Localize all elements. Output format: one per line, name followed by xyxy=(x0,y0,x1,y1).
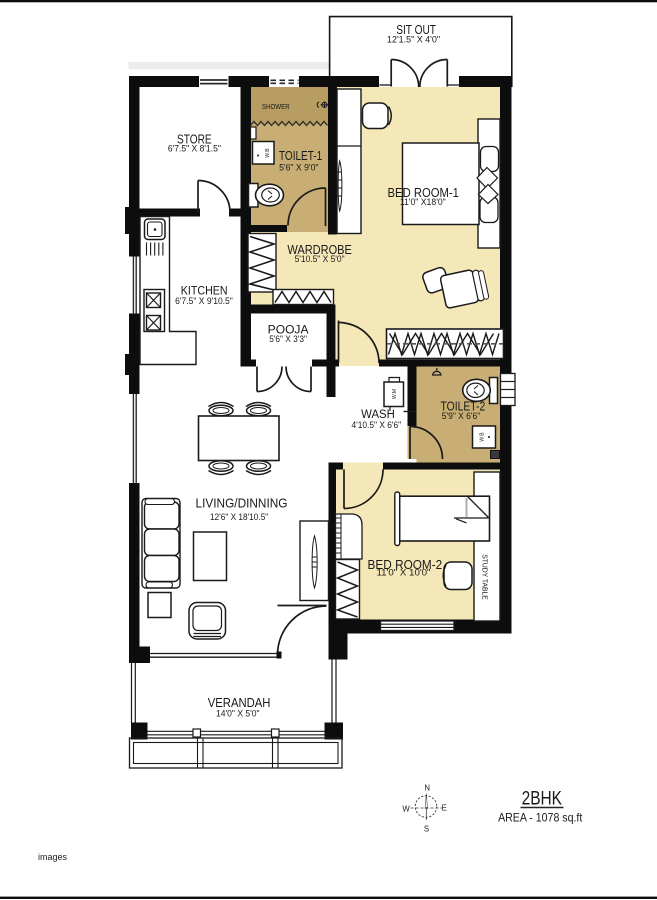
svg-text:12'6" X 18'10.5": 12'6" X 18'10.5" xyxy=(210,512,268,522)
svg-text:W.M: W.M xyxy=(392,389,398,399)
svg-text:W: W xyxy=(402,804,410,813)
svg-text:W.B: W.B xyxy=(480,432,486,442)
svg-text:2BHK: 2BHK xyxy=(522,789,563,810)
svg-text:5'9" X 6'6": 5'9" X 6'6" xyxy=(442,411,480,421)
svg-text:E: E xyxy=(442,803,447,812)
svg-text:TOILET-1: TOILET-1 xyxy=(279,149,322,163)
svg-text:11'0" X 10'0": 11'0" X 10'0" xyxy=(377,568,431,578)
svg-text:14'0" X 5'0": 14'0" X 5'0" xyxy=(216,708,260,718)
svg-text:SHOWER: SHOWER xyxy=(262,102,290,111)
svg-text:5'6" X 3'3": 5'6" X 3'3" xyxy=(269,334,307,344)
svg-text:5'6" X 9'0": 5'6" X 9'0" xyxy=(279,163,318,173)
svg-text:W.B: W.B xyxy=(265,148,271,158)
svg-text:N: N xyxy=(424,784,430,793)
svg-text:S: S xyxy=(424,825,429,834)
svg-text:12'1.5" X 4'0": 12'1.5" X 4'0" xyxy=(387,35,440,45)
svg-text:STUDY TABLE: STUDY TABLE xyxy=(480,554,487,600)
svg-text:5'10.5" X 5'0": 5'10.5" X 5'0" xyxy=(295,254,345,264)
svg-text:AREA - 1078 sq.ft: AREA - 1078 sq.ft xyxy=(498,812,583,825)
svg-text:4'10.5" X 6'6": 4'10.5" X 6'6" xyxy=(351,420,401,430)
svg-text:11'0" X18'0": 11'0" X18'0" xyxy=(400,197,446,207)
svg-text:6'7.5" X 9'10.5": 6'7.5" X 9'10.5" xyxy=(175,296,233,306)
svg-text:images: images xyxy=(38,852,68,862)
svg-text:LIVING/DINNING: LIVING/DINNING xyxy=(196,495,288,510)
svg-text:6'7.5" X 8'1.5": 6'7.5" X 8'1.5" xyxy=(168,144,221,154)
